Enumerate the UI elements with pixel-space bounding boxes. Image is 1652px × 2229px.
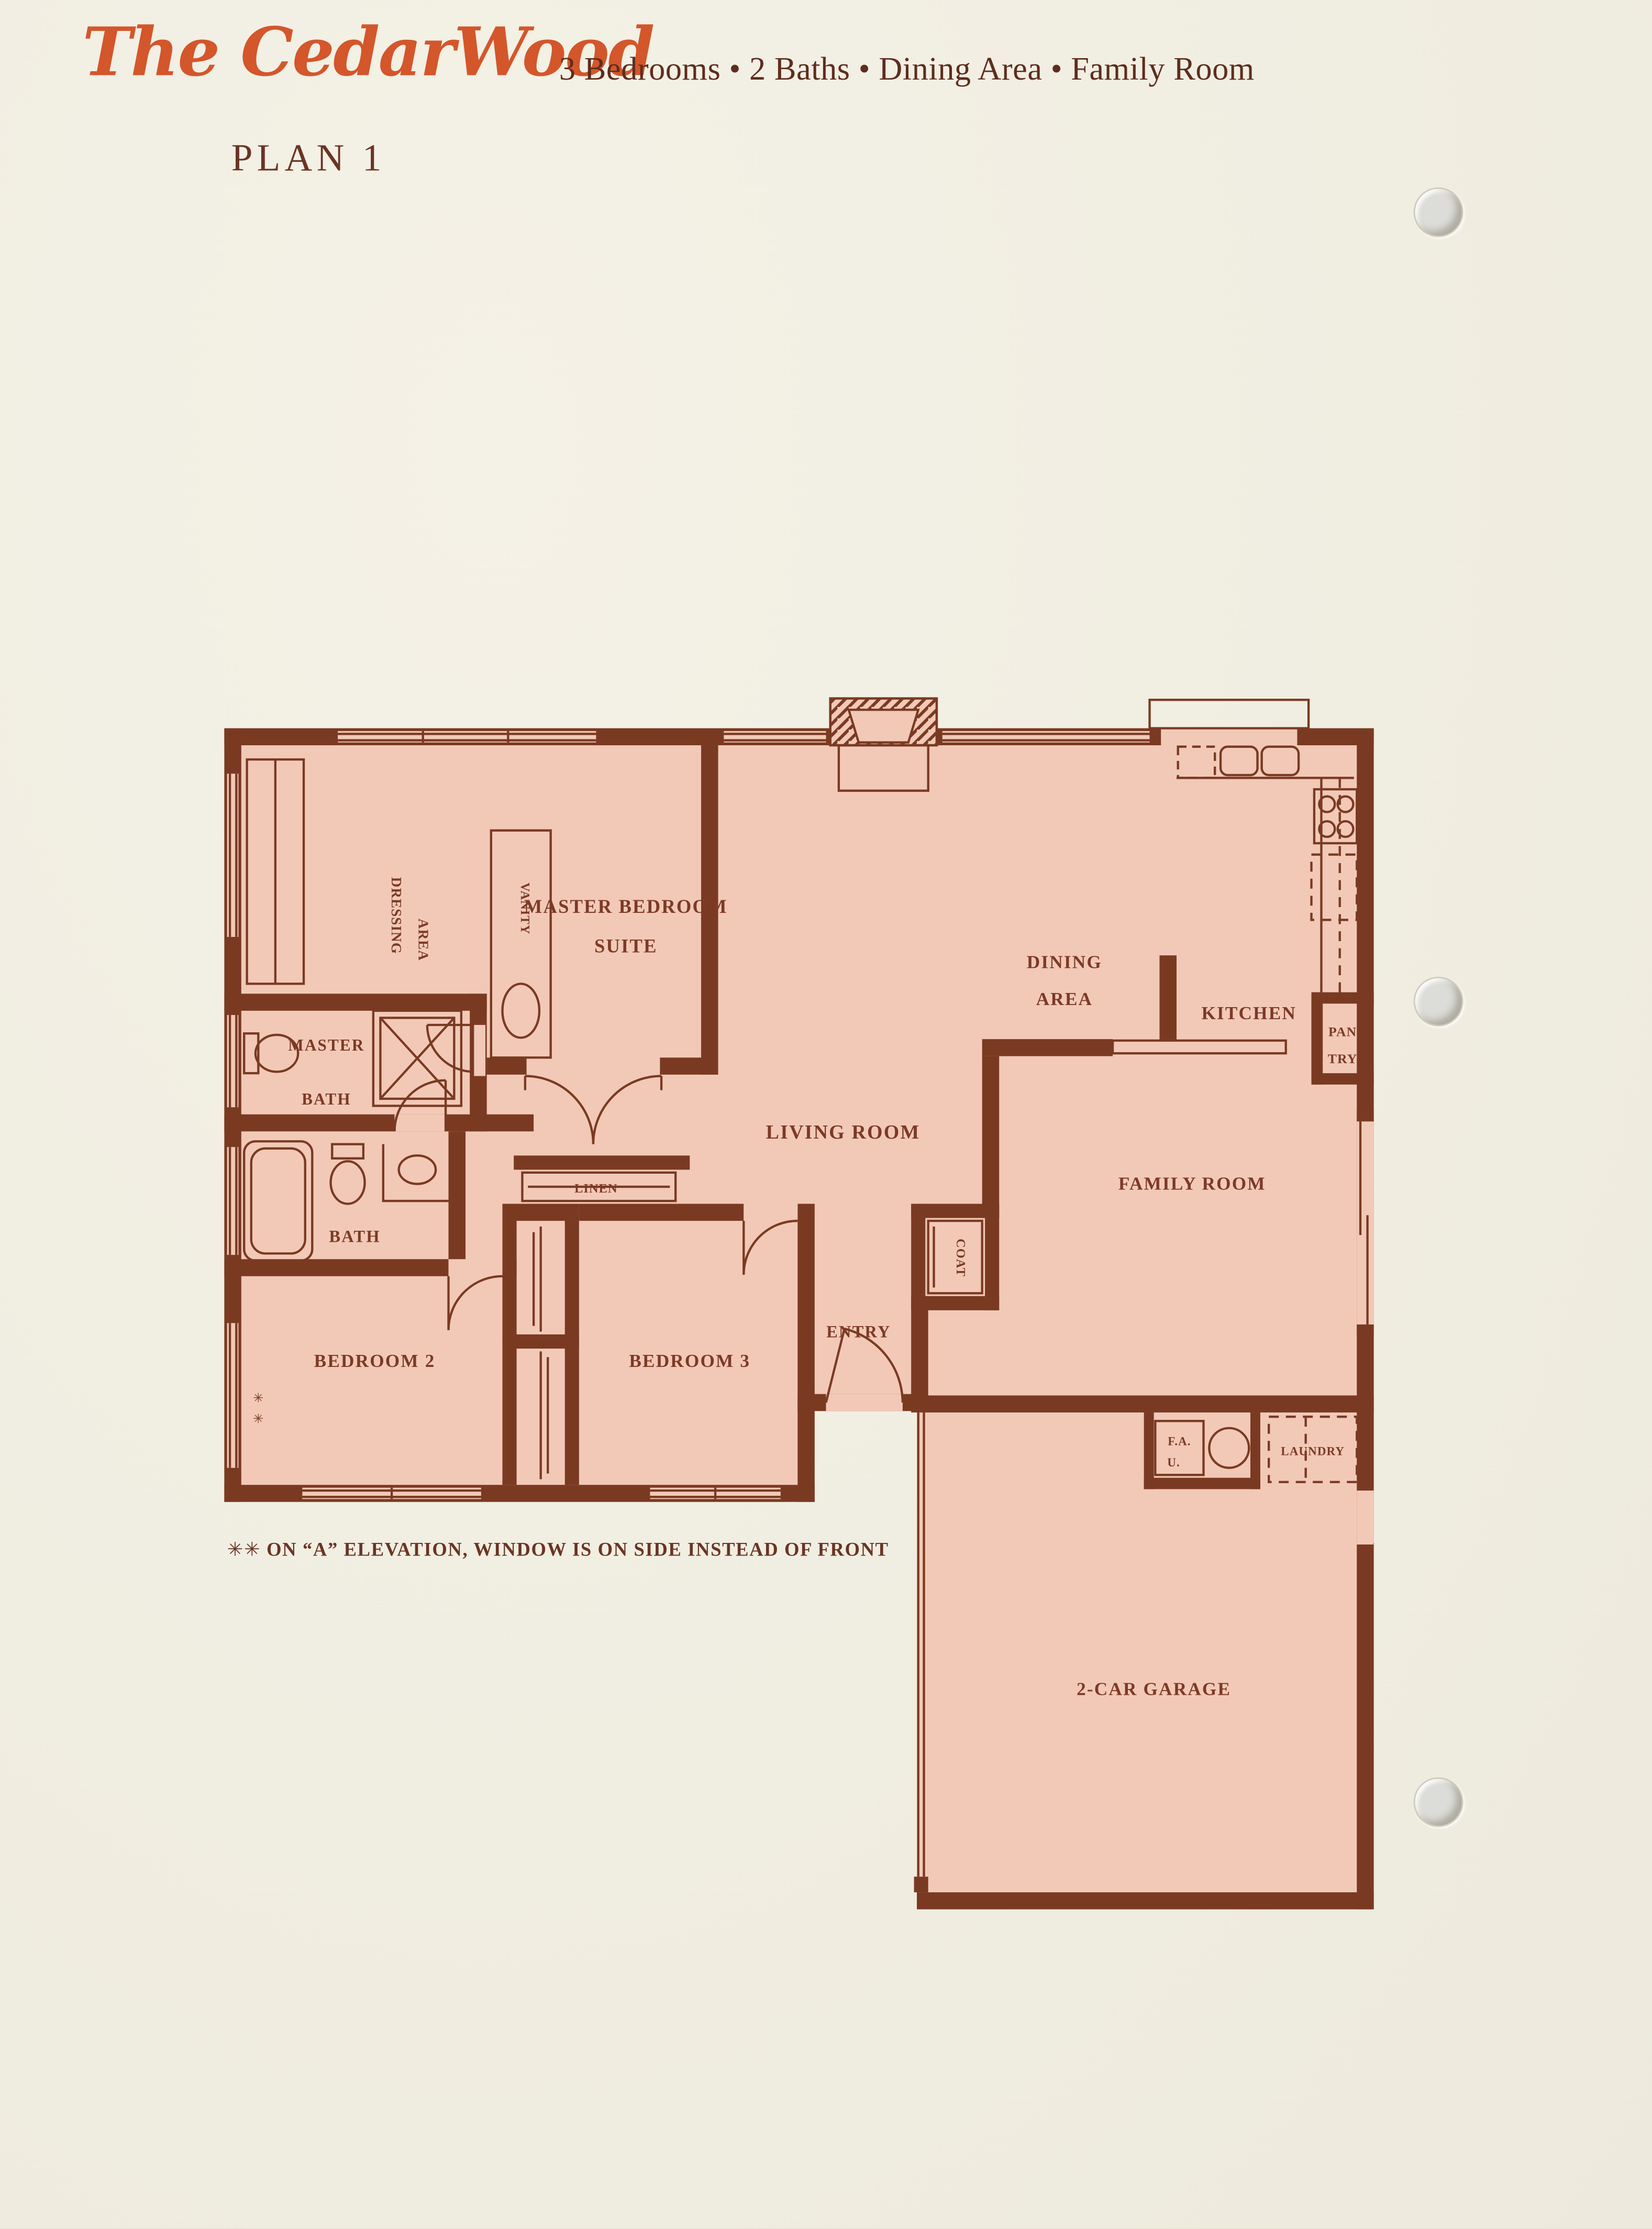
label-vanity: VANITY xyxy=(518,882,532,935)
label-family-room: FAMILY ROOM xyxy=(1118,1173,1266,1194)
punch-hole-icon xyxy=(1414,187,1463,237)
label-dressing-area: AREA xyxy=(416,919,431,961)
label-entry: ENTRY xyxy=(826,1322,891,1341)
label-bedroom3: BEDROOM 3 xyxy=(629,1351,750,1371)
footnote-text: ON “A” ELEVATION, WINDOW IS ON SIDE INST… xyxy=(267,1539,889,1560)
label-master-bath-1: MASTER xyxy=(288,1036,364,1054)
punch-hole-icon xyxy=(1414,1778,1463,1827)
footnote-asterisk-marks: ✳✳ xyxy=(227,1539,261,1561)
plan-number: PLAN 1 xyxy=(231,136,386,180)
footnote: ✳✳ ON “A” ELEVATION, WINDOW IS ON SIDE I… xyxy=(227,1539,889,1561)
elevation-window-marks: ✳✳ xyxy=(251,1390,266,1432)
page-subtitle: 3 Bedrooms • 2 Baths • Dining Area • Fam… xyxy=(559,51,1255,88)
label-fau-1: F.A. xyxy=(1168,1434,1191,1448)
label-fau-2: U. xyxy=(1167,1455,1180,1469)
floor-plan: MASTER BEDROOM SUITE DRESSING AREA VANIT… xyxy=(224,696,1374,1916)
label-pantry-2: TRY xyxy=(1328,1051,1358,1066)
label-master-bedroom-suite: SUITE xyxy=(594,935,658,957)
label-master-bedroom: MASTER BEDROOM xyxy=(524,896,728,917)
label-bath: BATH xyxy=(329,1228,380,1246)
label-bedroom2: BEDROOM 2 xyxy=(314,1351,436,1371)
label-dressing: DRESSING xyxy=(389,877,404,954)
punch-hole-icon xyxy=(1414,977,1463,1027)
label-master-bath-2: BATH xyxy=(302,1090,351,1108)
label-living-room: LIVING ROOM xyxy=(766,1121,921,1143)
label-dining-2: AREA xyxy=(1036,989,1093,1009)
label-kitchen: KITCHEN xyxy=(1201,1003,1296,1023)
label-pantry-1: PAN xyxy=(1328,1024,1357,1040)
label-coat: COAT xyxy=(953,1239,968,1277)
label-garage: 2-CAR GARAGE xyxy=(1077,1679,1231,1699)
brochure-page: The CedarWood 3 Bedrooms • 2 Baths • Din… xyxy=(0,0,1652,2228)
label-linen: LINEN xyxy=(574,1182,618,1196)
label-laundry: LAUNDRY xyxy=(1281,1444,1345,1458)
label-dining-1: DINING xyxy=(1027,952,1102,973)
